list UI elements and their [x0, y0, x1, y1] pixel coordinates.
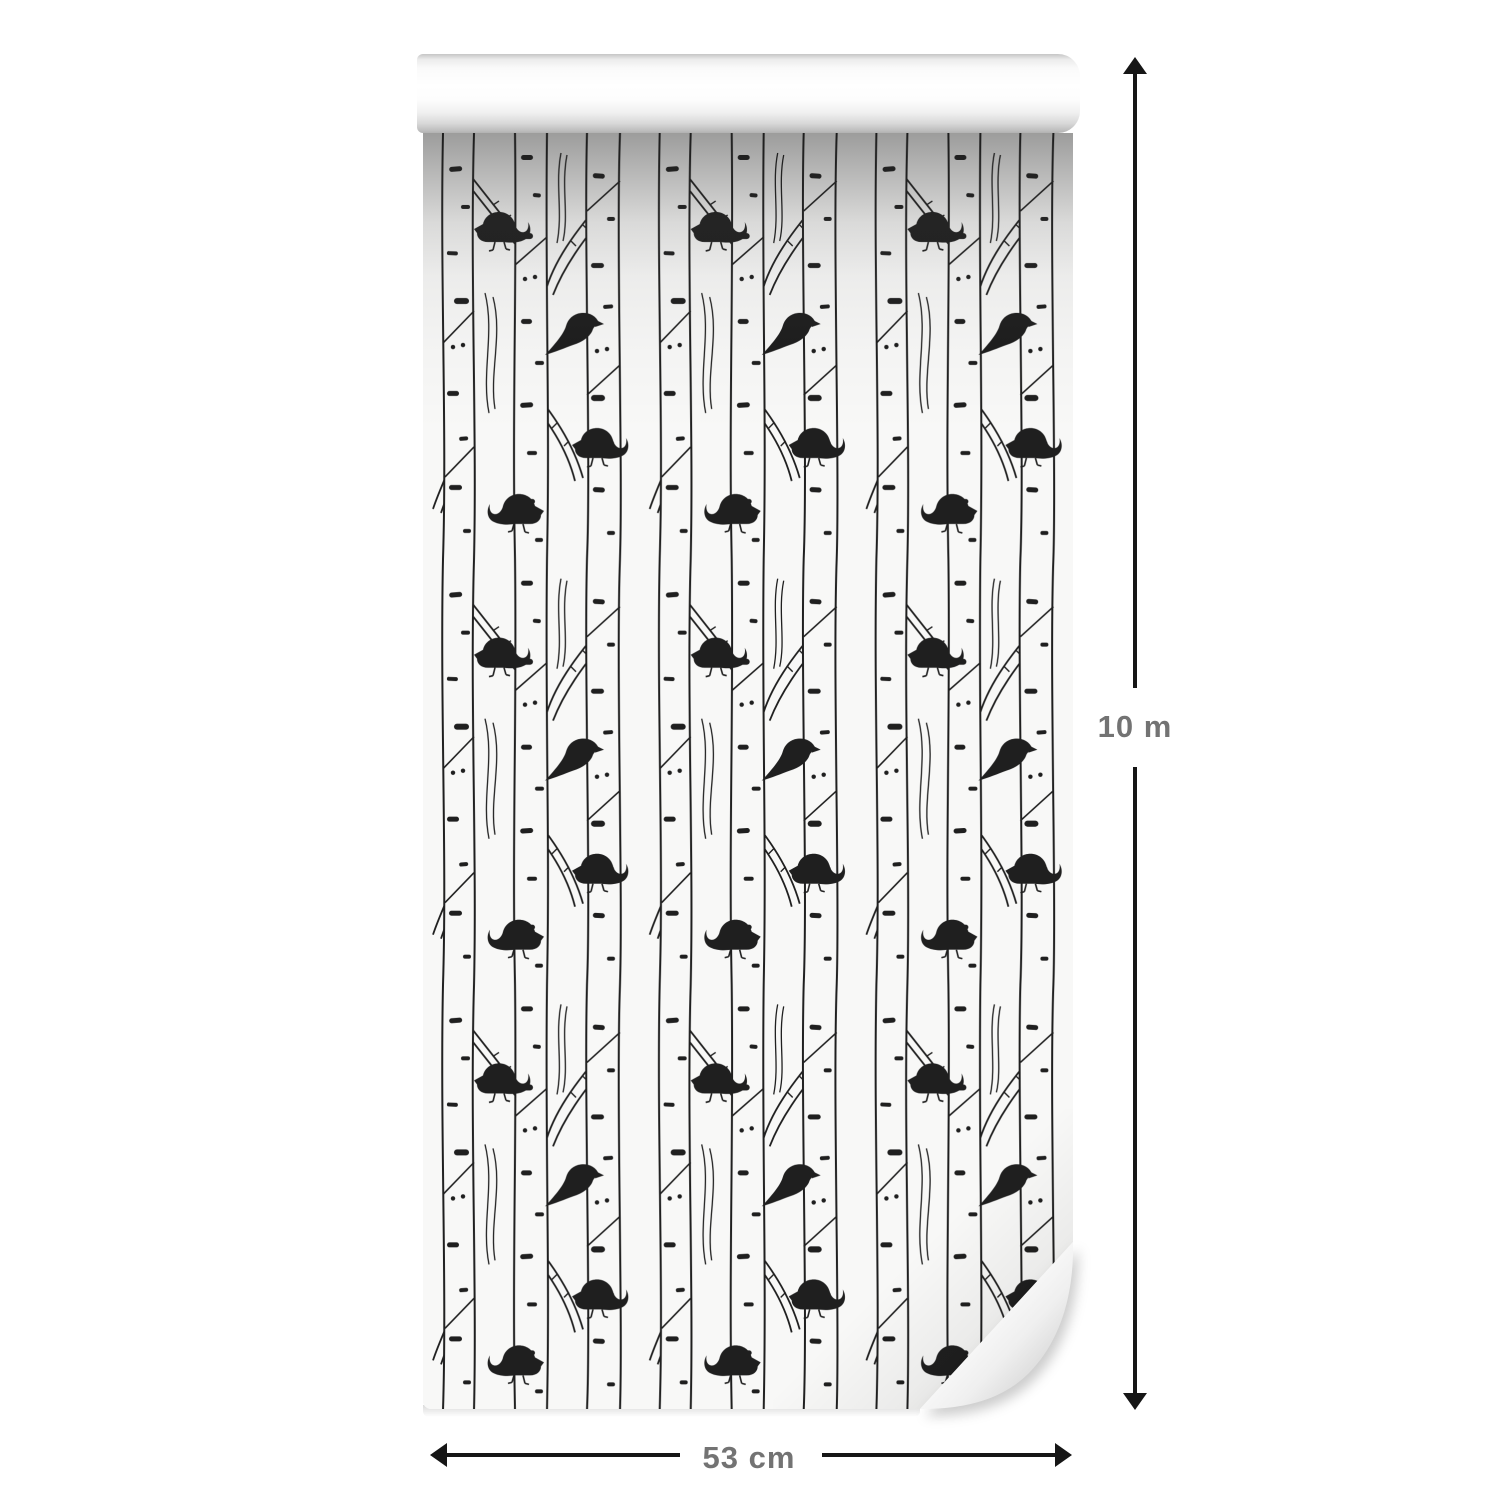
height-label: 10 m: [1060, 711, 1210, 742]
arrow-right-icon: [1055, 1443, 1072, 1467]
arrow-line: [822, 1453, 1056, 1457]
wallpaper-roll-top: [417, 54, 1080, 133]
arrow-down-icon: [1123, 1393, 1147, 1410]
width-label: 53 cm: [649, 1442, 849, 1473]
birch-bird-pattern: [423, 133, 1073, 1409]
wallpaper-sheet: [423, 133, 1073, 1409]
arrow-line: [445, 1453, 680, 1457]
arrow-line: [1133, 72, 1137, 688]
page-curl: [918, 1240, 1075, 1411]
product-image: 10 m 53 cm: [0, 0, 1500, 1500]
arrow-line: [1133, 767, 1137, 1394]
